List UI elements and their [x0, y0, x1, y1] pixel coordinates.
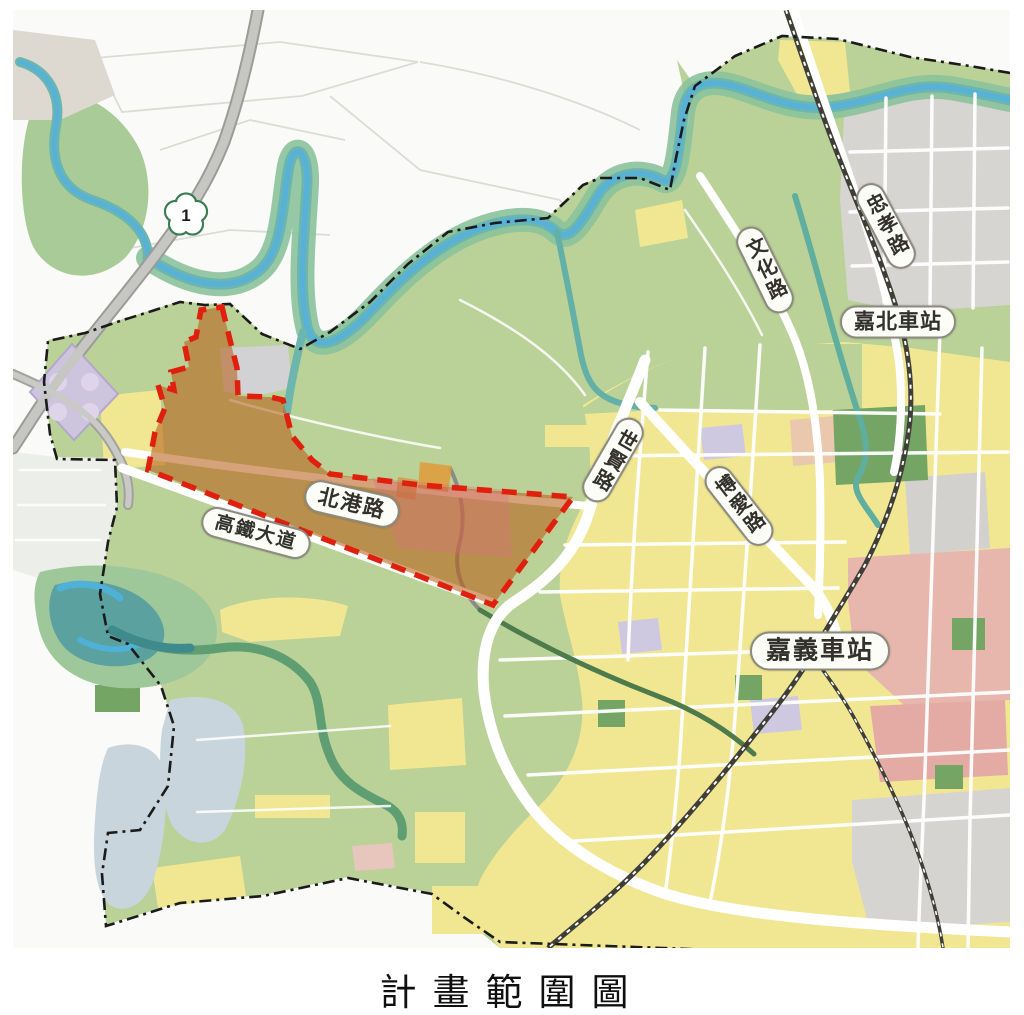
station-label-jiabei: 嘉北車站 [840, 306, 956, 339]
station-label-chiayi: 嘉義車站 [750, 632, 890, 671]
map-artwork [0, 0, 1024, 1015]
figure-caption: 計畫範圍圖 [0, 962, 1024, 1015]
highway-1-number: 1 [181, 206, 190, 226]
figure-page: 1 北港路 高鐵大道 世賢路 博愛路 文化路 忠孝路 嘉北車站 嘉義車站 計畫範… [0, 0, 1024, 1015]
